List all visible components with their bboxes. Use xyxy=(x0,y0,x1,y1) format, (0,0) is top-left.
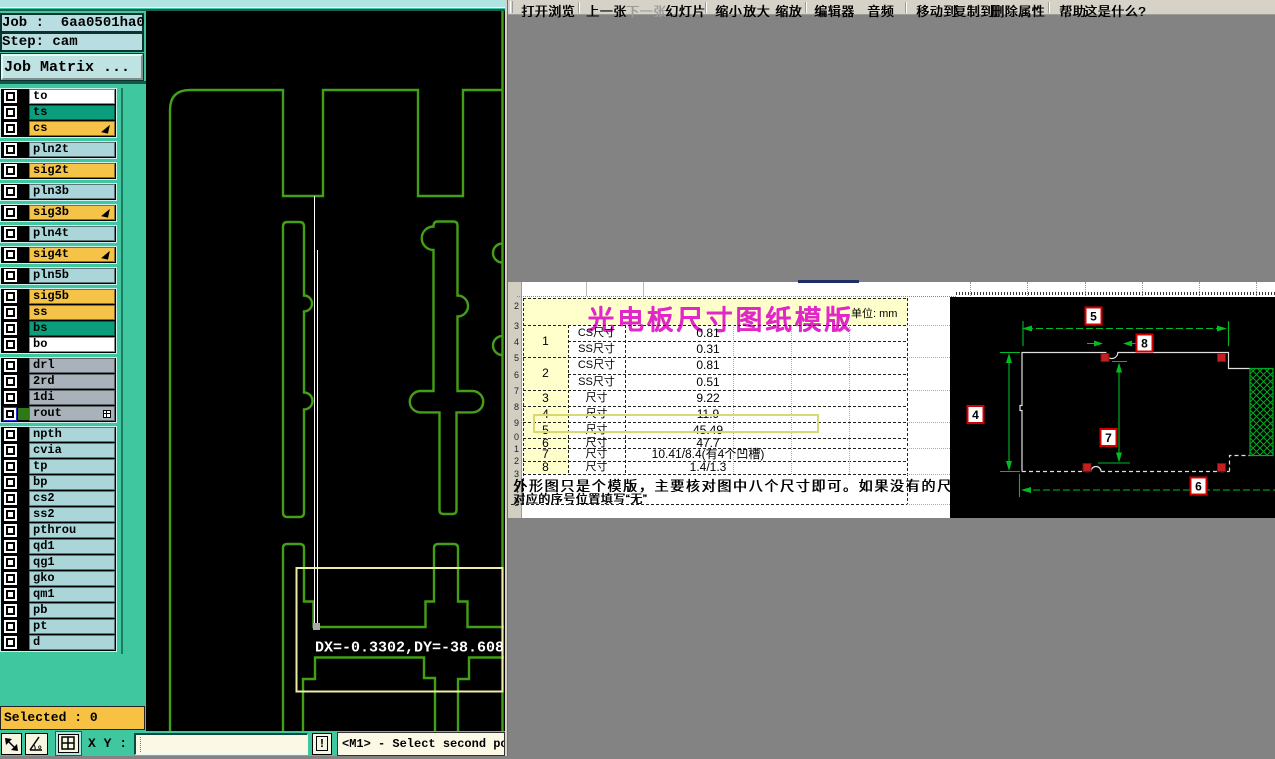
svg-text:8: 8 xyxy=(1141,337,1148,351)
svg-text:6: 6 xyxy=(1195,480,1202,494)
svg-text:7: 7 xyxy=(1105,431,1112,445)
svg-text:4: 4 xyxy=(972,408,979,422)
svg-text:o: o xyxy=(38,744,42,751)
svg-text:DX=-0.3302,DY=-38.608: DX=-0.3302,DY=-38.608 xyxy=(315,640,504,657)
svg-text:5: 5 xyxy=(1090,310,1097,324)
